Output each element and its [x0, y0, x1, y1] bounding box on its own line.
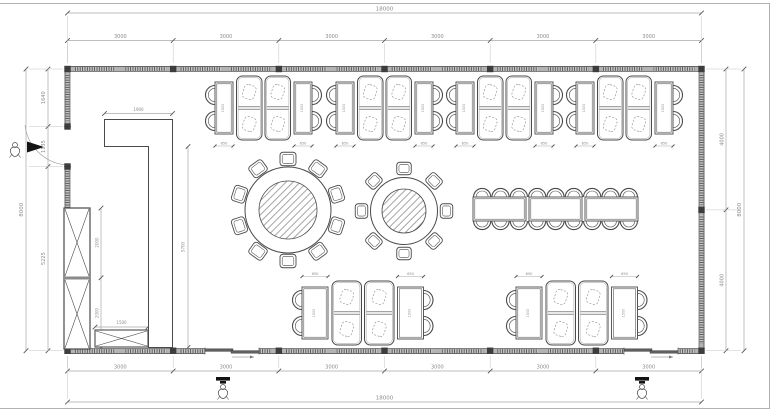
column — [170, 66, 176, 72]
booth-group: 65065015001500 — [447, 76, 563, 148]
dimension-label: 1500 — [526, 309, 530, 318]
chair-inner — [476, 221, 488, 227]
dimension-label: 3000 — [431, 34, 444, 40]
dim-top-overall: 18000 — [376, 7, 394, 13]
dim-partition-height: 5700 — [180, 241, 185, 252]
dimension-label: 3000 — [431, 365, 444, 371]
lazy-susan — [382, 189, 426, 233]
entry-figures — [10, 143, 650, 400]
chair-inner — [295, 293, 302, 306]
window-hatch — [66, 74, 70, 121]
dim-left-overall: 8000 — [19, 202, 25, 216]
dimension-label: 650 — [421, 141, 429, 145]
chair — [397, 247, 412, 260]
window-hatch — [548, 349, 589, 353]
column — [593, 66, 599, 72]
dimension-label: 3000 — [220, 34, 233, 40]
dimension-label: 650 — [407, 272, 415, 276]
column — [64, 66, 70, 72]
booth-sofa — [579, 281, 609, 345]
dimension-label: 650 — [582, 141, 590, 145]
furniture: 6506501500150065065015001500650650150015… — [64, 76, 683, 349]
booth-sofa — [626, 76, 652, 140]
sliding-door-leaf — [650, 351, 678, 354]
window-hatch — [75, 67, 116, 71]
booth-group: 65065015001500 — [206, 76, 322, 148]
chair-inner — [424, 293, 431, 306]
column — [698, 207, 704, 213]
window-hatch — [125, 349, 166, 353]
chair-inner — [424, 319, 431, 332]
chair-inner — [638, 319, 645, 332]
chair-inner — [476, 191, 488, 197]
booth-sofa — [386, 76, 412, 140]
dimension-label: 3000 — [220, 365, 233, 371]
door-slide-arrowhead — [669, 356, 673, 359]
round-table-small — [355, 162, 453, 260]
chair-inner — [673, 114, 680, 127]
window-hatch — [548, 67, 589, 71]
booth-sofa — [506, 76, 532, 140]
chair-inner — [449, 114, 456, 127]
window-hatch — [654, 67, 695, 71]
column — [487, 66, 493, 72]
chair — [355, 204, 368, 219]
chair-inner — [586, 191, 598, 197]
dimension-label: 650 — [621, 272, 629, 276]
booth-sofa — [546, 281, 576, 345]
dimension-label: 1500 — [408, 309, 412, 318]
chair-inner — [553, 88, 560, 101]
window-hatch — [700, 75, 704, 205]
dimension-label: 3000 — [325, 365, 338, 371]
window-hatch — [286, 349, 327, 353]
sliding-door-leaf — [205, 349, 233, 352]
chair-inner — [605, 191, 617, 197]
dimension-label: 1500 — [342, 104, 346, 113]
window-hatch — [442, 349, 483, 353]
window-hatch — [180, 67, 221, 71]
booth-sofa — [358, 76, 384, 140]
booth-sofa — [478, 76, 504, 140]
chair-inner — [433, 88, 440, 101]
chair-inner — [550, 191, 562, 197]
chair-inner — [673, 88, 680, 101]
dim-right-seg-1: 4000 — [720, 133, 726, 146]
sliding-door-leaf — [231, 351, 259, 354]
dim-right-seg-2: 4000 — [720, 274, 726, 287]
dimension-label: 650 — [526, 272, 534, 276]
chair-inner — [568, 221, 580, 227]
person-figure — [10, 143, 21, 158]
window-hatch — [442, 67, 483, 71]
column — [64, 163, 70, 169]
dimension-label: 1500 — [462, 104, 466, 113]
dimension-label: 650 — [300, 141, 308, 145]
chair-inner — [312, 88, 319, 101]
dimension-label: 650 — [221, 141, 229, 145]
dim-counter-width: 1500 — [116, 320, 127, 325]
lazy-susan — [259, 181, 317, 239]
dimension-label: 3000 — [114, 34, 127, 40]
long-table-section — [585, 197, 638, 221]
sliding-door-leaf — [624, 349, 652, 352]
low-counter — [95, 330, 148, 347]
chair-inner — [513, 221, 525, 227]
long-table-section — [473, 197, 526, 221]
floor-plan-drawing: 18000 18000 8000 8000 1640 1135 5225 400… — [0, 0, 772, 414]
booth-group: 65065015001500 — [327, 76, 443, 148]
column — [381, 66, 387, 72]
door-opening — [64, 127, 72, 167]
chair-inner — [531, 221, 543, 227]
dimension-label: 1500 — [622, 309, 626, 318]
chair-inner — [208, 114, 215, 127]
chair — [397, 162, 412, 175]
window-hatch — [497, 349, 538, 353]
dimension-label: 3000 — [537, 365, 550, 371]
person-figure — [635, 377, 649, 400]
dimension-label: 650 — [541, 141, 549, 145]
window-hatch — [286, 67, 327, 71]
column — [487, 348, 493, 354]
column — [64, 123, 70, 129]
person-figure — [216, 377, 230, 400]
column — [698, 66, 704, 72]
chair-inner — [569, 88, 576, 101]
dimension-label: 1500 — [661, 104, 665, 113]
column — [698, 348, 704, 354]
window-hatch — [497, 67, 538, 71]
chair-inner — [623, 191, 635, 197]
dim-cabinet-lower: 2000 — [94, 307, 99, 318]
chair-inner — [208, 88, 215, 101]
door-slide-arrowhead — [250, 356, 254, 359]
window-hatch — [337, 67, 378, 71]
chair-inner — [550, 221, 562, 227]
window-hatch — [75, 349, 116, 353]
dim-bottom-overall: 18000 — [376, 396, 394, 402]
chair-inner — [509, 319, 516, 332]
dimension-label: 1500 — [541, 104, 545, 113]
dim-right-overall: 8000 — [737, 202, 743, 216]
chair-inner — [586, 221, 598, 227]
chair-inner — [495, 221, 507, 227]
chair — [280, 152, 296, 166]
dim-left-seg-1: 1640 — [41, 91, 47, 104]
window-hatch — [700, 215, 704, 344]
chair-inner — [329, 114, 336, 127]
long-table-section — [529, 197, 582, 221]
chair-inner — [553, 114, 560, 127]
chair-inner — [312, 114, 319, 127]
dimension-label: 3000 — [642, 365, 655, 371]
dimension-label: 1500 — [312, 309, 316, 318]
dimension-label: 1500 — [300, 104, 304, 113]
dimension-label: 1500 — [582, 104, 586, 113]
chair-inner — [605, 221, 617, 227]
chair-inner — [329, 88, 336, 101]
window-hatch — [392, 67, 433, 71]
booth-group: 65065015001500 — [507, 272, 648, 345]
column — [170, 348, 176, 354]
booth-sofa — [365, 281, 395, 345]
dim-partition-width: 1900 — [133, 107, 144, 112]
chair-inner — [531, 191, 543, 197]
column — [593, 348, 599, 354]
chair — [440, 204, 453, 219]
dimension-label: 3000 — [537, 34, 550, 40]
window-hatch — [231, 67, 272, 71]
booth-sofa — [237, 76, 263, 140]
booth-sofa — [332, 281, 362, 345]
floor-plan-sheet: 18000 18000 8000 8000 1640 1135 5225 400… — [0, 0, 772, 414]
dimension-label: 650 — [462, 141, 470, 145]
dimension-label: 1500 — [221, 104, 225, 113]
long-table — [473, 188, 638, 229]
dimension-label: 3000 — [642, 34, 655, 40]
column — [276, 66, 282, 72]
chair-inner — [623, 221, 635, 227]
column — [381, 348, 387, 354]
window-hatch — [392, 349, 433, 353]
booth-sofa — [265, 76, 291, 140]
chair-inner — [513, 191, 525, 197]
chair-inner — [433, 114, 440, 127]
round-table-large — [231, 152, 346, 268]
chair-inner — [569, 114, 576, 127]
chair-inner — [295, 319, 302, 332]
chair-inner — [495, 191, 507, 197]
dimension-label: 650 — [312, 272, 320, 276]
dimension-label: 3000 — [114, 365, 127, 371]
dim-cabinet-upper: 2000 — [94, 237, 99, 248]
window-hatch — [603, 67, 644, 71]
chair-inner — [449, 88, 456, 101]
window-hatch — [125, 67, 166, 71]
chair-inner — [509, 293, 516, 306]
column — [276, 348, 282, 354]
chair-inner — [568, 191, 580, 197]
booth-group: 65065015001500 — [293, 272, 434, 345]
dim-left-seg-3: 5225 — [41, 252, 47, 265]
booth-sofa — [598, 76, 624, 140]
dimension-label: 3000 — [325, 34, 338, 40]
dimension-label: 1500 — [421, 104, 425, 113]
booth-group: 65065015001500 — [567, 76, 683, 148]
dimension-label: 650 — [342, 141, 350, 145]
wall-cabinet — [64, 208, 90, 349]
dimension-label: 650 — [661, 141, 669, 145]
window-hatch — [337, 349, 378, 353]
chair-inner — [638, 293, 645, 306]
chair — [280, 254, 296, 268]
partition-wall — [105, 120, 173, 348]
